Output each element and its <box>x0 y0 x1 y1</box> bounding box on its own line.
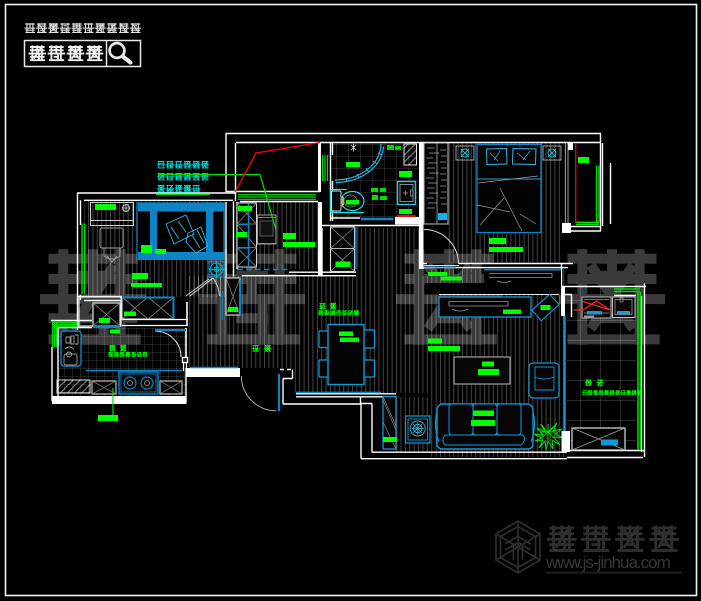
svg-text:www.js-jinhua.com: www.js-jinhua.com <box>545 553 671 572</box>
